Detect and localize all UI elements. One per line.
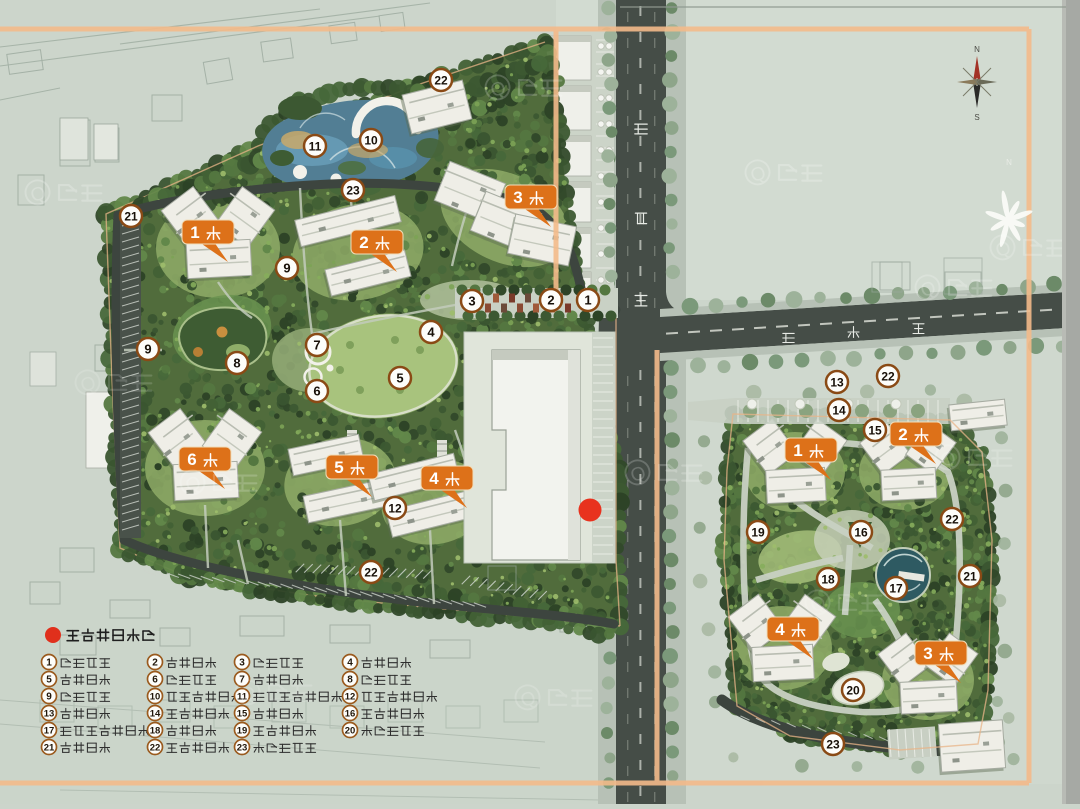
svg-text:9: 9 [283, 261, 290, 276]
svg-text:4: 4 [775, 620, 785, 639]
svg-text:14: 14 [832, 403, 846, 417]
svg-text:6: 6 [313, 384, 320, 399]
svg-text:22: 22 [434, 73, 448, 87]
svg-text:1: 1 [190, 223, 199, 242]
svg-text:4: 4 [429, 469, 439, 488]
svg-text:19: 19 [751, 525, 765, 539]
svg-text:6: 6 [152, 674, 158, 685]
svg-text:9: 9 [144, 342, 151, 357]
svg-text:22: 22 [364, 565, 378, 579]
svg-text:15: 15 [868, 423, 882, 437]
svg-text:14: 14 [150, 708, 161, 719]
svg-text:8: 8 [233, 356, 240, 371]
svg-text:10: 10 [364, 133, 378, 147]
svg-text:21: 21 [124, 209, 138, 223]
svg-text:18: 18 [150, 725, 161, 736]
svg-text:23: 23 [826, 737, 840, 751]
svg-text:23: 23 [346, 183, 360, 197]
svg-text:3: 3 [923, 644, 932, 663]
svg-text:3: 3 [468, 294, 475, 309]
svg-text:13: 13 [830, 375, 844, 389]
svg-text:1: 1 [46, 657, 52, 668]
svg-text:5: 5 [334, 458, 343, 477]
svg-text:4: 4 [427, 325, 435, 340]
svg-text:1: 1 [584, 293, 591, 308]
svg-text:12: 12 [388, 501, 402, 515]
svg-text:5: 5 [46, 674, 52, 685]
svg-text:19: 19 [237, 725, 248, 736]
svg-text:16: 16 [854, 525, 868, 539]
svg-text:6: 6 [187, 450, 196, 469]
svg-text:20: 20 [846, 683, 860, 697]
svg-text:15: 15 [237, 708, 248, 719]
svg-text:3: 3 [513, 188, 522, 207]
svg-text:17: 17 [889, 581, 903, 595]
svg-text:2: 2 [898, 425, 907, 444]
svg-text:22: 22 [945, 512, 959, 526]
svg-text:22: 22 [881, 369, 895, 383]
svg-text:21: 21 [963, 569, 977, 583]
svg-text:5: 5 [396, 371, 403, 386]
svg-text:3: 3 [239, 657, 245, 668]
svg-text:9: 9 [46, 691, 52, 702]
svg-text:7: 7 [313, 338, 320, 353]
svg-text:N: N [1006, 158, 1012, 167]
svg-text:1: 1 [793, 441, 802, 460]
svg-text:N: N [974, 45, 980, 54]
svg-text:17: 17 [44, 725, 55, 736]
svg-text:2: 2 [547, 293, 554, 308]
svg-text:4: 4 [347, 657, 353, 668]
svg-text:10: 10 [150, 691, 161, 702]
svg-text:18: 18 [821, 572, 835, 586]
svg-text:22: 22 [150, 742, 161, 753]
svg-text:2: 2 [152, 657, 158, 668]
svg-text:11: 11 [309, 139, 322, 153]
svg-text:21: 21 [44, 742, 55, 753]
svg-text:2: 2 [359, 233, 368, 252]
svg-text:23: 23 [237, 742, 248, 753]
svg-text:13: 13 [44, 708, 55, 719]
svg-text:S: S [974, 113, 979, 122]
